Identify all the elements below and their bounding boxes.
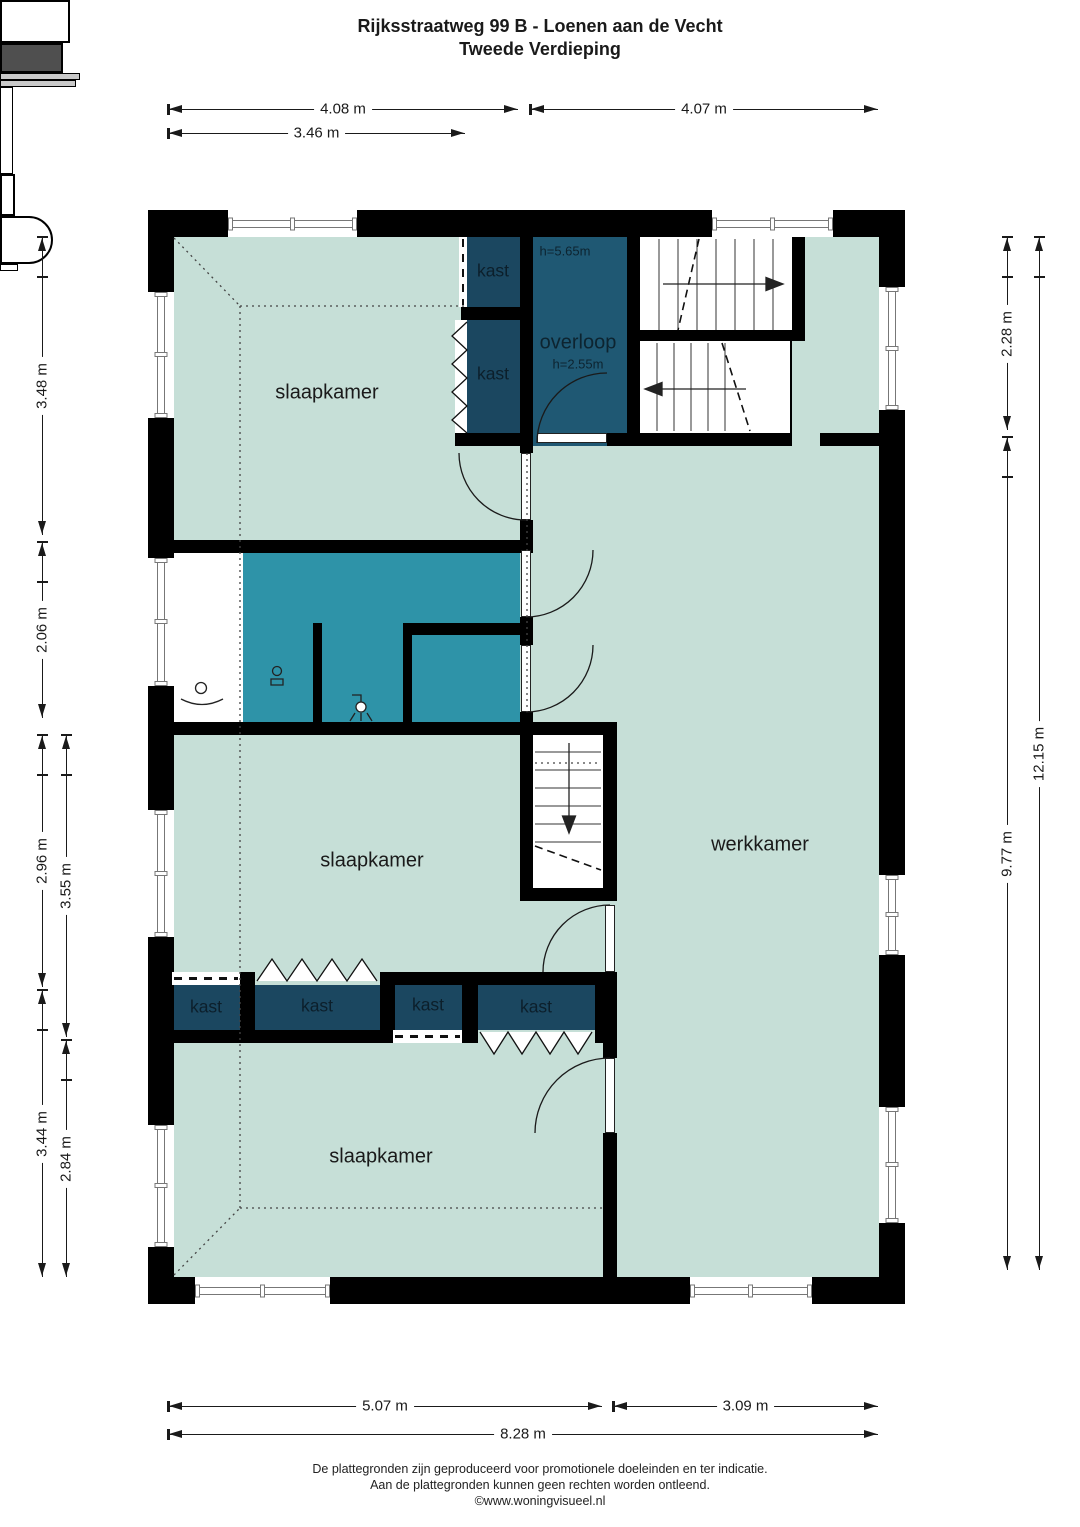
window-cap (155, 810, 168, 815)
dim-arrow (588, 1402, 601, 1410)
door-leaf (537, 433, 607, 443)
page-title: Rijksstraatweg 99 B - Loenen aan de Vech… (0, 16, 1080, 37)
window-cap (195, 1284, 200, 1297)
window-cap (886, 1162, 899, 1167)
sliding-door-dash (395, 1035, 460, 1038)
window-cap (886, 875, 899, 880)
staircase-down-flight (640, 341, 792, 433)
window-icon (195, 1277, 330, 1304)
wall-bathroom-bottom (148, 722, 617, 735)
wall-toilet-top (403, 623, 520, 635)
dim-arrow (864, 105, 877, 113)
shower-handle (0, 264, 18, 271)
wall-closet-row-top (380, 972, 603, 985)
dim-arrow (38, 543, 46, 556)
window-cap (807, 1284, 812, 1297)
dim-label: 3.46 m (288, 125, 346, 142)
window-cap (886, 1218, 899, 1223)
dim-arrow (169, 1430, 182, 1438)
window-cap (886, 1107, 899, 1112)
dim-label: 4.08 m (314, 101, 372, 118)
window-cap (886, 950, 899, 955)
closet-label: kast (190, 997, 222, 1018)
window-icon (148, 810, 174, 937)
wall-closet-row-bottom (148, 1030, 393, 1043)
dim-tick (1034, 276, 1045, 278)
dim-arrow (62, 1023, 70, 1036)
dim-label: 5.07 m (356, 1398, 414, 1415)
dim-label: 2.84 m (58, 1130, 75, 1188)
closet-label: kast (477, 261, 509, 282)
dim-arrow (38, 238, 46, 251)
dim-arrow (1003, 416, 1011, 429)
room-label-slaapkamer-topleft: slaapkamer (275, 382, 378, 405)
wall-closet-divider (461, 307, 533, 320)
wall-werkkamer-left (603, 1133, 617, 1277)
dim-arrow (169, 105, 182, 113)
window-icon (690, 1277, 812, 1304)
shower-stall (174, 553, 243, 722)
door-leaf (521, 550, 531, 617)
dim-arrow (451, 129, 464, 137)
dim-label: 3.48 m (34, 357, 51, 415)
window-cap (155, 1125, 168, 1130)
dim-tick (37, 581, 48, 583)
window-cap (748, 1284, 753, 1297)
dim-arrow (38, 736, 46, 749)
room-label-overloop: overloop (540, 332, 617, 355)
wall-stair-middle (627, 330, 805, 341)
wall-closet-row-bottom (462, 1030, 478, 1043)
dim-label: 8.28 m (494, 1426, 552, 1443)
page-subtitle: Tweede Verdieping (0, 39, 1080, 60)
footer-disclaimer-line1: De plattegronden zijn geproduceerd voor … (0, 1462, 1080, 1476)
bathroom-area (243, 553, 520, 722)
window-cap (155, 1183, 168, 1188)
dim-arrow (62, 736, 70, 749)
dim-label: 2.06 m (34, 601, 51, 659)
window-icon (148, 1125, 174, 1247)
dim-tick (37, 276, 48, 278)
wall-midstair-left (520, 722, 533, 901)
door-leaf (605, 905, 615, 972)
dim-tick (1002, 476, 1013, 478)
dim-tick (37, 774, 48, 776)
dim-arrow (38, 991, 46, 1004)
wall-toilet-partition (403, 635, 412, 722)
window-cap (155, 681, 168, 686)
sliding-door-icon (393, 1030, 462, 1043)
shower-glass-panel (0, 73, 80, 80)
footer-copyright: ©www.woningvisueel.nl (0, 1494, 1080, 1508)
dim-arrow (614, 1402, 627, 1410)
wall-shower-partition (313, 623, 322, 722)
wall-bathroom-top (148, 540, 533, 553)
dim-label: 9.77 m (999, 825, 1016, 883)
wall-segment (455, 433, 533, 446)
window-cap (886, 405, 899, 410)
window-icon (712, 210, 833, 237)
window-cap (228, 217, 233, 230)
wall-stair-left (627, 237, 640, 446)
toilet-door-leaf (0, 87, 13, 174)
room-label-slaapkamer-middle: slaapkamer (320, 850, 423, 873)
window-cap (155, 558, 168, 563)
dim-label: 2.28 m (999, 305, 1016, 363)
window-cap (155, 352, 168, 357)
dim-arrow (864, 1402, 877, 1410)
ceiling-height-label: h=2.55m (553, 357, 604, 372)
window-cap (155, 619, 168, 624)
dim-arrow (38, 704, 46, 717)
window-cap (828, 217, 833, 230)
window-cap (325, 1284, 330, 1297)
wall-closet-row-top (148, 972, 172, 985)
dim-arrow (38, 973, 46, 986)
dim-tick (37, 1029, 48, 1031)
wall-segment (520, 520, 533, 550)
dim-arrow (169, 1402, 182, 1410)
window-cap (155, 292, 168, 297)
dim-tick (61, 1079, 72, 1081)
dim-arrow (169, 129, 182, 137)
window-icon (879, 875, 905, 955)
window-icon (148, 292, 174, 418)
sliding-door-dash (462, 239, 465, 305)
window-cap (260, 1284, 265, 1297)
wall-midstair-bottom (520, 888, 617, 901)
door-leaf (521, 453, 531, 520)
door-leaf (605, 1058, 615, 1133)
closet-label: kast (412, 995, 444, 1016)
shower-glass-panel (0, 80, 76, 87)
dim-arrow (62, 1263, 70, 1276)
closet-label: kast (520, 997, 552, 1018)
window-cap (690, 1284, 695, 1297)
dim-arrow (1003, 238, 1011, 251)
window-icon (879, 1107, 905, 1223)
window-icon (228, 210, 357, 237)
window-cap (290, 217, 295, 230)
dim-arrow (62, 1041, 70, 1054)
dim-label: 4.07 m (675, 101, 733, 118)
dim-arrow (38, 521, 46, 534)
dim-tick (61, 774, 72, 776)
window-cap (155, 871, 168, 876)
door-leaf (521, 645, 531, 712)
floorplan-page: Rijksstraatweg 99 B - Loenen aan de Vech… (0, 0, 1080, 1527)
window-cap (770, 217, 775, 230)
dim-arrow (1035, 238, 1043, 251)
dim-arrow (38, 1263, 46, 1276)
sliding-door-icon (172, 972, 240, 985)
dim-tick (1002, 276, 1013, 278)
window-cap (886, 346, 899, 351)
dim-label: 3.44 m (34, 1105, 51, 1163)
wall-segment (520, 617, 533, 645)
wall-midstair-right (603, 722, 617, 901)
window-cap (155, 1242, 168, 1247)
window-cap (712, 217, 717, 230)
dim-arrow (1003, 438, 1011, 451)
wall-stair-right (792, 237, 805, 341)
dim-arrow (1003, 1256, 1011, 1269)
closet-label: kast (477, 364, 509, 385)
dim-arrow (1035, 1256, 1043, 1269)
toilet-tank (0, 174, 15, 216)
sliding-door-icon (459, 237, 467, 307)
footer-disclaimer-line2: Aan de plattegronden kunnen geen rechten… (0, 1478, 1080, 1492)
window-cap (155, 932, 168, 937)
dim-arrow (531, 105, 544, 113)
room-label-werkkamer: werkkamer (711, 834, 809, 857)
dim-label: 12.15 m (1031, 720, 1048, 786)
window-cap (886, 287, 899, 292)
ceiling-height-label: h=5.65m (540, 244, 591, 259)
wall-hall-left (520, 237, 533, 453)
dim-arrow (864, 1430, 877, 1438)
closet-label: kast (301, 996, 333, 1017)
window-icon (879, 287, 905, 410)
window-cap (886, 912, 899, 917)
dim-label: 3.09 m (717, 1398, 775, 1415)
window-cap (352, 217, 357, 230)
window-cap (155, 413, 168, 418)
wall-segment (820, 433, 879, 446)
room-label-slaapkamer-bottom: slaapkamer (329, 1146, 432, 1169)
staircase-up-flight (640, 237, 792, 330)
window-icon (148, 558, 174, 686)
dim-arrow (504, 105, 517, 113)
closet-door-track (455, 320, 467, 433)
staircase-mid (533, 735, 603, 888)
dim-label: 3.55 m (58, 857, 75, 915)
dim-label: 2.96 m (34, 832, 51, 890)
sliding-door-dash (174, 977, 238, 980)
